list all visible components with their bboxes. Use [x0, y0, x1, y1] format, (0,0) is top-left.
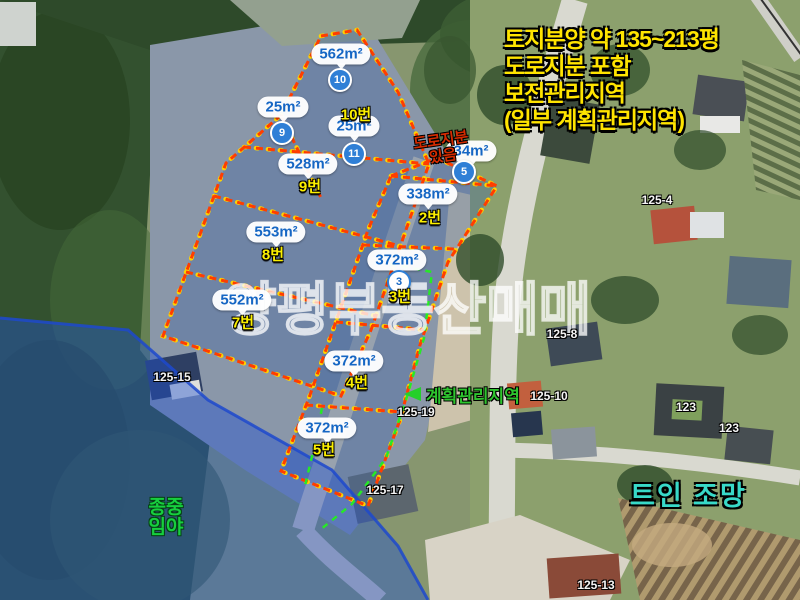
- parcel-number-7: 7번: [232, 312, 254, 333]
- lot-number-125-8: 125-8: [547, 327, 578, 341]
- parcel-number-2: 2번: [419, 207, 441, 228]
- headline-line-1: 토지분양 약 135~213평: [504, 26, 719, 53]
- open-view-label: 트인 조망: [630, 474, 747, 513]
- area-bubble-25a: 25m²: [257, 97, 308, 118]
- aerial-land-sale-map: 토지분양 약 135~213평 도로지분 포함 보전관리지역 (일부 계획관리지…: [0, 0, 800, 600]
- area-bubble-338: 338m²: [398, 184, 457, 205]
- headline: 토지분양 약 135~213평 도로지분 포함 보전관리지역 (일부 계획관리지…: [504, 26, 719, 134]
- parcel-number-5: 5번: [313, 439, 335, 460]
- area-bubble-372c: 372m²: [297, 418, 356, 439]
- lot-number-125-15: 125-15: [153, 370, 190, 384]
- parcel-number-4: 4번: [346, 372, 368, 393]
- area-bubble-562: 562m²: [311, 44, 370, 65]
- lot-number-125-17: 125-17: [366, 483, 403, 497]
- parcel-number-8: 8번: [262, 244, 284, 265]
- parcel-number-9: 9번: [299, 176, 321, 197]
- headline-line-4: (일부 계획관리지역): [504, 107, 719, 134]
- lot-number-125-13: 125-13: [577, 578, 614, 592]
- lot-number-125-19: 125-19: [397, 405, 434, 419]
- plan-zone-label: 계획관리지역: [426, 382, 520, 407]
- lot-number-123b: 123: [719, 421, 739, 435]
- circle-marker-10: 10: [328, 68, 352, 92]
- lot-number-125-10: 125-10: [530, 389, 567, 403]
- area-bubble-553: 553m²: [246, 222, 305, 243]
- area-bubble-372b: 372m²: [324, 351, 383, 372]
- area-bubble-372a: 372m²: [367, 250, 426, 271]
- area-bubble-528: 528m²: [278, 154, 337, 175]
- clan-forest-label: 종중 임야: [149, 498, 184, 538]
- circle-marker-9: 9: [270, 121, 294, 145]
- lot-number-123a: 123: [676, 400, 696, 414]
- headline-line-2: 도로지분 포함: [504, 53, 719, 80]
- circle-marker-11: 11: [342, 142, 366, 166]
- circle-marker-5: 5: [452, 160, 476, 184]
- clan-forest-label-line-2: 임야: [149, 518, 184, 538]
- clan-forest-label-line-1: 종중: [149, 498, 184, 518]
- area-bubble-552: 552m²: [212, 290, 271, 311]
- parcel-number-10: 10번: [341, 104, 372, 125]
- parcel-number-3: 3번: [389, 286, 411, 307]
- headline-line-3: 보전관리지역: [504, 80, 719, 107]
- lot-number-125-4: 125-4: [642, 193, 673, 207]
